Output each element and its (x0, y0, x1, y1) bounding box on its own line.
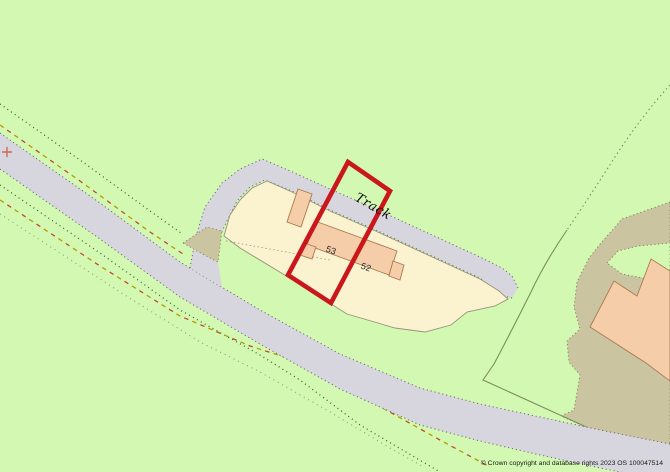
map-svg: Track 53 52 © Crown copyright and databa… (0, 0, 670, 472)
map-attribution: © Crown copyright and database rights 20… (481, 459, 663, 467)
os-map-canvas: Track 53 52 © Crown copyright and databa… (0, 0, 670, 472)
